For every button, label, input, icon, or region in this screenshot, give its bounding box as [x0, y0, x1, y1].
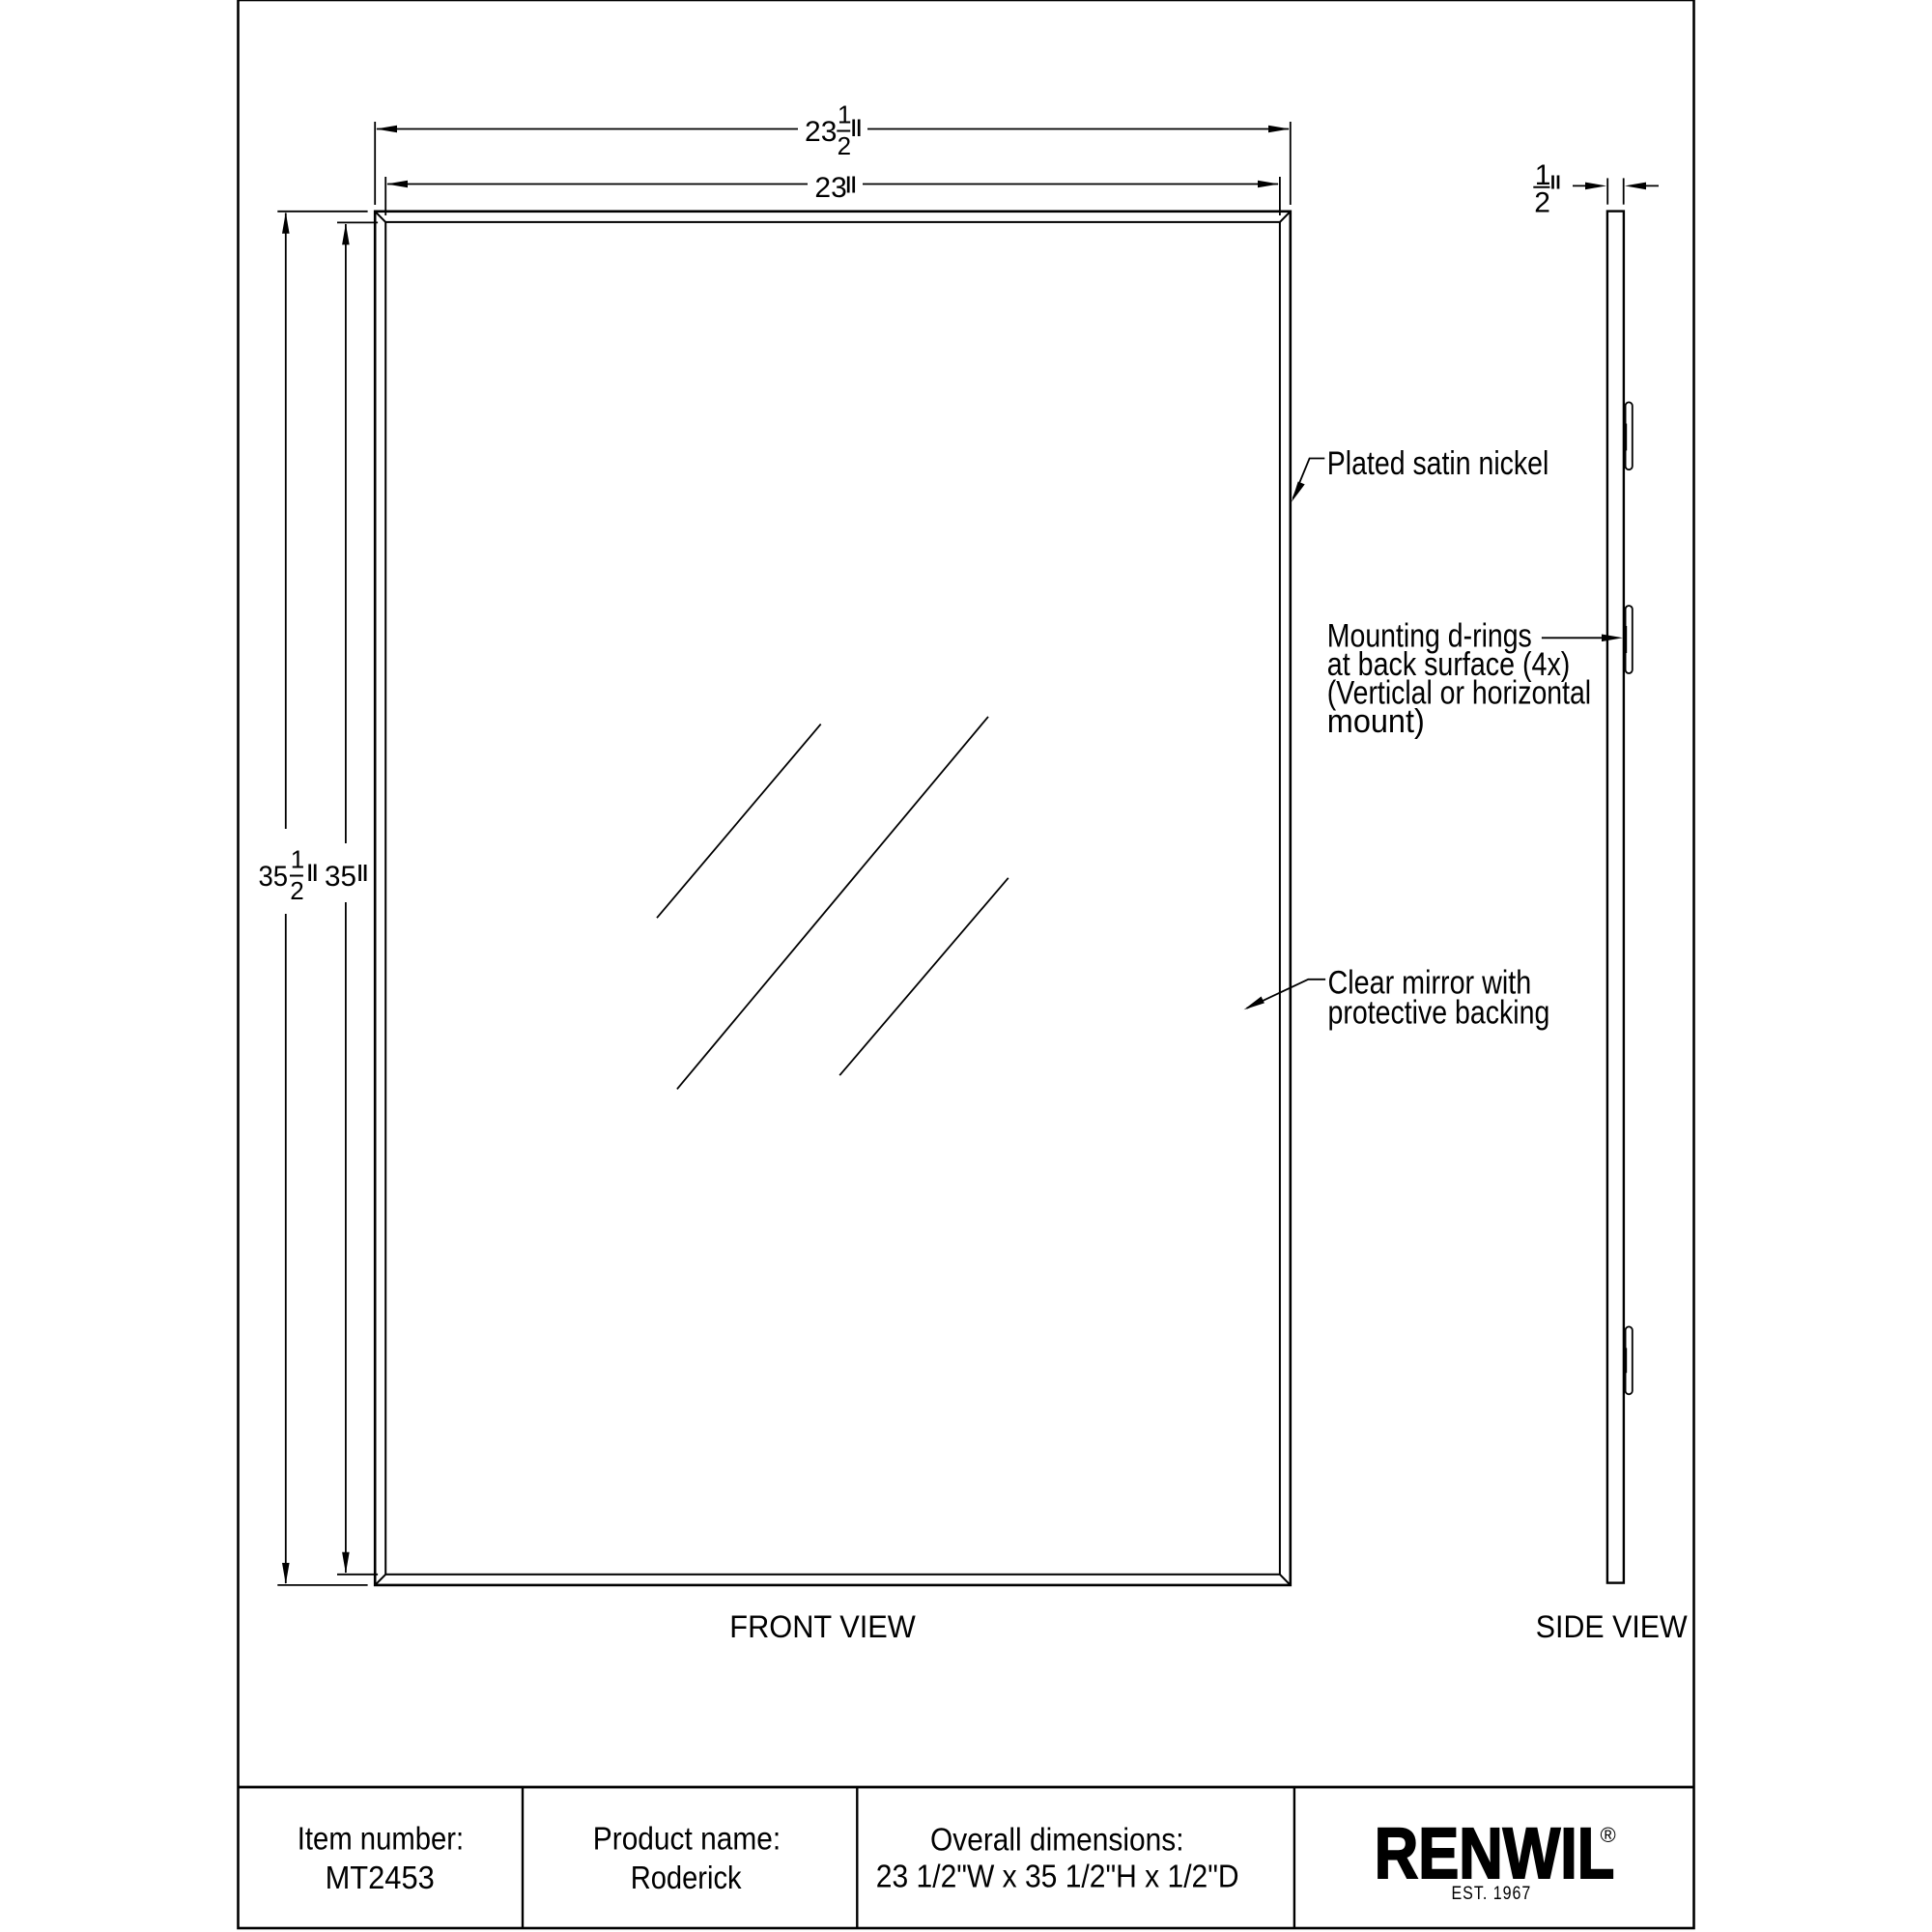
svg-text:mount): mount) [1327, 703, 1425, 740]
svg-text:Overall dimensions:: Overall dimensions: [930, 1823, 1184, 1859]
svg-text:1: 1 [838, 100, 851, 129]
svg-text:RENWIL: RENWIL [1375, 1813, 1614, 1893]
svg-text:2: 2 [838, 131, 851, 160]
svg-text:23: 23 [814, 172, 846, 204]
svg-text:FRONT VIEW: FRONT VIEW [729, 1609, 916, 1644]
svg-text:MT2453: MT2453 [326, 1861, 435, 1896]
svg-text:35: 35 [325, 861, 356, 893]
svg-text:23: 23 [805, 116, 837, 148]
svg-text:Roderick: Roderick [631, 1861, 742, 1896]
svg-text:2: 2 [290, 876, 303, 905]
svg-text:23 1/2"W x 35 1/2"H x 1/2"D: 23 1/2"W x 35 1/2"H x 1/2"D [876, 1859, 1239, 1894]
svg-text:EST. 1967: EST. 1967 [1452, 1883, 1532, 1904]
svg-text:protective backing: protective backing [1328, 995, 1550, 1032]
svg-text:Item number:: Item number: [298, 1822, 464, 1858]
svg-text:Product name:: Product name: [593, 1822, 781, 1858]
svg-text:SIDE VIEW: SIDE VIEW [1536, 1609, 1689, 1644]
svg-text:Plated satin nickel: Plated satin nickel [1327, 445, 1549, 482]
svg-text:1: 1 [291, 845, 304, 874]
svg-text:®: ® [1601, 1823, 1616, 1847]
svg-text:2: 2 [1534, 187, 1550, 219]
svg-text:35: 35 [259, 861, 289, 893]
